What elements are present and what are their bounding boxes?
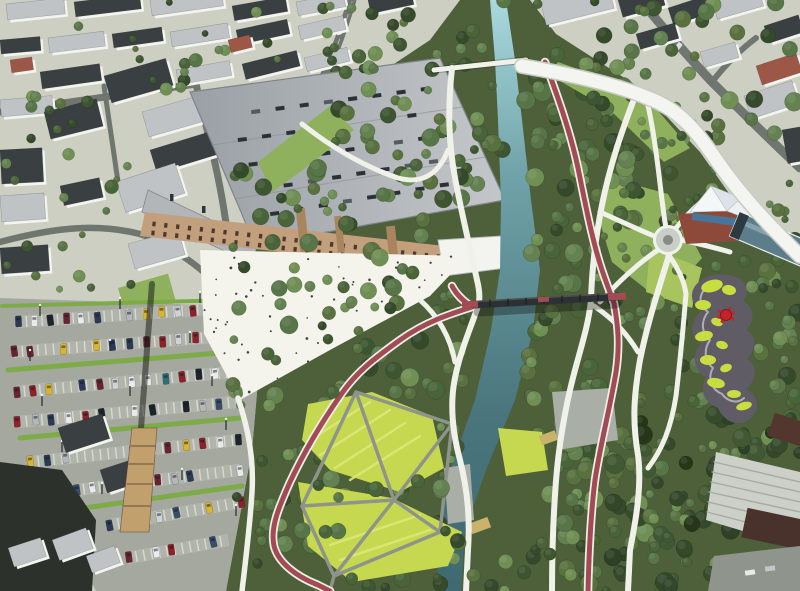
person-dot <box>352 281 354 283</box>
tree-highlight <box>720 448 725 453</box>
tree-highlight <box>468 570 475 577</box>
tree-highlight <box>332 102 340 110</box>
person-dot <box>397 261 399 263</box>
tree-highlight <box>362 83 370 91</box>
tree-highlight <box>367 8 373 14</box>
tree-highlight <box>11 176 16 181</box>
car <box>199 438 206 450</box>
tree-highlight <box>545 549 551 555</box>
tree-highlight <box>434 574 438 578</box>
tree-highlight <box>254 209 262 217</box>
tree-highlight <box>452 534 459 541</box>
tree-highlight <box>373 250 382 259</box>
tree-highlight <box>732 449 737 454</box>
tree-highlight <box>332 524 340 532</box>
window <box>200 227 204 232</box>
window <box>223 230 227 235</box>
tree-highlight <box>353 51 360 58</box>
person-dot <box>270 330 272 332</box>
tree-highlight <box>266 236 274 244</box>
tree-highlight <box>747 92 756 101</box>
tree-highlight <box>592 379 601 388</box>
tree-highlight <box>760 284 765 289</box>
window <box>187 235 191 240</box>
car-windshield <box>32 317 36 320</box>
tree-highlight <box>747 281 753 287</box>
tree-highlight <box>252 8 257 13</box>
tree-highlight <box>731 26 739 34</box>
tree-highlight <box>216 47 220 51</box>
car <box>15 316 22 327</box>
window <box>282 237 286 242</box>
tree-highlight <box>415 229 422 236</box>
tree-highlight <box>713 120 720 127</box>
car <box>154 474 161 485</box>
person-dot <box>226 321 228 323</box>
tree-highlight <box>770 381 775 386</box>
tree-highlight <box>319 322 323 326</box>
tree-highlight <box>324 335 329 340</box>
car-windshield <box>49 416 53 419</box>
tree-highlight <box>789 389 797 397</box>
person-dot <box>450 255 452 257</box>
person-dot <box>233 257 235 259</box>
tree-highlight <box>723 93 732 102</box>
tree-highlight <box>691 52 696 57</box>
tree-highlight <box>527 169 536 178</box>
tree-highlight <box>655 528 663 536</box>
tree-highlight <box>388 20 394 26</box>
tree-highlight <box>415 190 420 195</box>
tree-highlight <box>637 307 642 312</box>
tree-highlight <box>677 541 685 549</box>
car-windshield <box>127 312 131 315</box>
tree-highlight <box>618 244 623 249</box>
tree-highlight <box>534 0 539 5</box>
car-windshield <box>33 416 37 419</box>
tree-highlight <box>402 8 410 16</box>
tree-highlight <box>150 77 154 81</box>
person-dot <box>215 279 217 281</box>
bridge-approach-east <box>608 293 626 301</box>
tree-highlight <box>602 116 608 122</box>
car-windshield <box>16 318 20 321</box>
person-dot <box>317 342 319 344</box>
light-pole-lamp <box>41 394 43 396</box>
tree-highlight <box>257 528 262 533</box>
car-windshield <box>157 513 161 516</box>
person-dot <box>381 300 383 302</box>
tree-highlight <box>664 579 672 587</box>
roof-chimney <box>170 194 174 201</box>
tree-highlight <box>625 437 632 444</box>
tree-highlight <box>670 206 674 210</box>
tree-highlight <box>527 358 532 363</box>
tree-highlight <box>32 92 37 97</box>
tree-highlight <box>500 556 507 563</box>
tree-highlight <box>362 284 370 292</box>
tree-highlight <box>610 526 616 532</box>
tree-highlight <box>127 281 131 285</box>
window <box>152 222 156 227</box>
tree-highlight <box>231 336 235 340</box>
tree-highlight <box>370 483 378 491</box>
window <box>188 226 192 231</box>
car-windshield <box>176 335 180 338</box>
window <box>247 232 251 237</box>
tree-highlight <box>64 149 70 155</box>
tree-highlight <box>627 504 635 512</box>
light-pole-lamp <box>129 384 131 386</box>
tree-highlight <box>678 132 683 137</box>
tree-highlight <box>684 68 691 75</box>
light-pole-lamp <box>211 374 213 376</box>
car-windshield <box>213 370 217 373</box>
car <box>126 338 133 349</box>
tree-highlight <box>637 399 641 403</box>
car <box>93 339 100 351</box>
tree-highlight <box>324 208 328 212</box>
tree-highlight <box>608 518 614 524</box>
tree-highlight <box>276 299 282 305</box>
tree-highlight <box>23 241 29 247</box>
car <box>158 306 165 317</box>
tree-highlight <box>441 293 446 298</box>
tree-highlight <box>675 413 679 417</box>
east-bank-lawn <box>498 428 548 476</box>
tree-highlight <box>700 487 709 496</box>
person-dot <box>237 359 239 361</box>
tree-highlight <box>428 382 437 391</box>
tree-highlight <box>549 107 557 115</box>
tree-highlight <box>444 363 450 369</box>
person-dot <box>254 281 256 283</box>
tree-highlight <box>417 214 424 221</box>
light-pole-lamp <box>101 482 103 484</box>
car-windshield <box>155 476 159 479</box>
car <box>65 412 72 424</box>
tree-highlight <box>532 135 539 142</box>
tree-highlight <box>607 495 616 504</box>
tree-highlight <box>32 272 37 277</box>
tree-highlight <box>620 152 629 161</box>
car <box>192 332 199 343</box>
tree-highlight <box>762 29 769 36</box>
tree-highlight <box>425 87 429 91</box>
tree-highlight <box>407 267 414 274</box>
tree-highlight <box>335 493 340 498</box>
tree-highlight <box>552 225 558 231</box>
tree-highlight <box>550 381 557 388</box>
car <box>31 315 37 326</box>
tree-highlight <box>180 59 186 65</box>
tree-highlight <box>106 181 113 188</box>
tree-highlight <box>277 194 282 199</box>
tree-highlight <box>436 192 445 201</box>
tree-highlight <box>347 573 353 579</box>
tree-highlight <box>787 281 793 287</box>
light-pole-lamp <box>119 297 121 299</box>
tree-highlight <box>227 378 234 385</box>
car-windshield <box>184 441 188 444</box>
tree-highlight <box>625 313 630 318</box>
tree-highlight <box>587 119 593 125</box>
tree-highlight <box>683 558 688 563</box>
tree-highlight <box>583 360 591 368</box>
car-windshield <box>83 413 87 416</box>
tree-highlight <box>774 332 781 339</box>
car <box>44 455 51 467</box>
car-windshield <box>191 307 195 310</box>
tree-highlight <box>768 127 775 134</box>
tree-highlight <box>780 368 789 377</box>
tree-highlight <box>124 163 128 167</box>
car-windshield <box>159 308 163 311</box>
car <box>13 387 20 399</box>
tree-highlight <box>478 43 483 48</box>
light-pole-lamp <box>181 468 183 470</box>
tree-highlight <box>266 499 272 505</box>
car <box>162 373 169 384</box>
path-hub-plaza <box>655 227 682 254</box>
car <box>189 305 196 317</box>
tree-highlight <box>328 56 333 61</box>
tree-highlight <box>625 20 632 27</box>
tree-highlight <box>103 208 107 212</box>
tree-highlight <box>640 318 647 325</box>
tree-highlight <box>177 83 182 88</box>
tree-highlight <box>27 102 33 108</box>
tree-highlight <box>595 52 602 59</box>
tree-highlight <box>27 135 32 140</box>
car-windshield <box>15 389 19 392</box>
window <box>401 250 405 255</box>
tree-highlight <box>620 189 625 194</box>
tree-highlight <box>457 44 462 49</box>
tree-highlight <box>689 396 695 402</box>
tree-highlight <box>286 191 294 199</box>
tree-highlight <box>519 567 526 574</box>
tree-highlight <box>268 388 277 397</box>
person-dot <box>217 319 219 321</box>
tree-highlight <box>382 584 387 589</box>
tree-highlight <box>260 519 267 526</box>
tree-highlight <box>296 523 304 531</box>
tree-highlight <box>339 282 345 288</box>
tree-highlight <box>567 470 575 478</box>
tree-highlight <box>626 45 634 53</box>
window <box>211 228 215 233</box>
car <box>174 306 182 318</box>
tree-highlight <box>671 492 679 500</box>
tree-highlight <box>787 94 796 103</box>
tree-highlight <box>341 304 346 309</box>
tree-highlight <box>525 246 534 255</box>
person-dot <box>306 337 309 340</box>
hub-center <box>663 235 673 245</box>
tree-highlight <box>406 388 412 394</box>
car-windshield <box>200 402 204 405</box>
aerial-masterplan-rendering <box>0 0 800 591</box>
tree-highlight <box>264 400 270 406</box>
car-windshield <box>80 381 84 384</box>
tree-highlight <box>398 264 404 270</box>
tree-highlight <box>314 481 320 487</box>
tree-highlight <box>233 302 240 309</box>
tree-highlight <box>438 423 442 427</box>
tree-highlight <box>133 46 136 49</box>
car-windshield <box>64 315 68 318</box>
tree-highlight <box>641 445 647 451</box>
tree-highlight <box>319 4 325 10</box>
tree-highlight <box>422 150 427 155</box>
car-windshield <box>47 386 51 389</box>
tree-highlight <box>580 58 588 66</box>
car-windshield <box>180 373 184 376</box>
window <box>164 223 168 228</box>
bridge-approach-west <box>462 301 478 309</box>
car <box>63 313 70 324</box>
car-windshield <box>61 345 65 348</box>
tree-highlight <box>559 181 568 190</box>
car-windshield <box>45 457 49 460</box>
tree-highlight <box>655 32 662 39</box>
tree-highlight <box>653 478 659 484</box>
tree-highlight <box>642 246 648 252</box>
light-pole-lamp <box>225 418 227 420</box>
car <box>212 368 219 380</box>
tree-highlight <box>641 69 647 75</box>
window <box>318 241 322 246</box>
tree-highlight <box>399 98 406 105</box>
tree-highlight <box>233 493 238 498</box>
tree-highlight <box>362 125 370 133</box>
car <box>10 345 18 357</box>
tree-highlight <box>782 216 786 220</box>
car <box>131 405 138 416</box>
car-windshield <box>48 316 52 319</box>
tree-highlight <box>371 303 375 307</box>
person-dot <box>215 327 217 329</box>
tree-highlight <box>546 244 554 252</box>
tree-highlight <box>518 92 527 101</box>
tree-highlight <box>554 284 559 289</box>
tree-highlight <box>340 67 347 74</box>
car <box>183 401 190 412</box>
car-windshield <box>184 403 188 406</box>
tree-highlight <box>669 140 673 144</box>
tree-highlight <box>781 356 785 360</box>
tree-highlight <box>423 130 432 139</box>
person-dot <box>429 262 431 264</box>
light-pole-lamp <box>39 304 41 306</box>
tree-highlight <box>752 438 758 444</box>
tree-highlight <box>538 538 544 544</box>
tree-highlight <box>321 198 326 203</box>
car <box>199 400 207 412</box>
car-windshield <box>12 347 16 350</box>
car <box>159 336 166 347</box>
person-dot <box>269 315 271 317</box>
tree-highlight <box>767 201 771 205</box>
tree-highlight <box>686 197 690 201</box>
window <box>330 242 334 247</box>
car-windshield <box>197 370 201 373</box>
building-roof <box>10 57 34 73</box>
car <box>46 384 53 395</box>
person-dot <box>307 258 309 260</box>
tree-highlight <box>230 243 235 248</box>
tree-highlight <box>787 180 791 184</box>
window <box>163 232 167 237</box>
person-dot <box>245 295 248 298</box>
person-dot <box>333 298 335 300</box>
tree-highlight <box>532 235 538 241</box>
person-dot <box>424 279 426 281</box>
tree-highlight <box>528 392 536 400</box>
tree-highlight <box>441 527 446 532</box>
tree-highlight <box>734 430 743 439</box>
light-pole-lamp <box>109 339 111 341</box>
tree-highlight <box>649 553 655 559</box>
tree-highlight <box>655 461 663 469</box>
tree-highlight <box>306 282 311 287</box>
tree-highlight <box>273 282 281 290</box>
tree-highlight <box>773 280 778 285</box>
tree-highlight <box>672 335 678 341</box>
tree-highlight <box>370 64 375 69</box>
roof-chimney <box>202 206 206 213</box>
tree-highlight <box>709 442 713 446</box>
person-dot <box>230 267 233 270</box>
car-windshield <box>218 439 222 442</box>
window <box>235 231 239 236</box>
tree-highlight <box>664 533 670 539</box>
light-pole-lamp <box>235 504 237 506</box>
tree-highlight <box>624 58 630 64</box>
tree-highlight <box>615 209 622 216</box>
car-windshield <box>95 314 99 317</box>
tree-highlight <box>467 25 474 32</box>
tree-highlight <box>331 44 336 49</box>
person-dot <box>213 331 215 333</box>
tree-highlight <box>69 119 74 124</box>
tree-highlight <box>482 141 486 145</box>
tree-highlight <box>639 118 643 122</box>
tree-highlight <box>667 45 673 51</box>
tree-highlight <box>626 458 633 465</box>
tree-highlight <box>2 159 7 164</box>
tree-highlight <box>257 180 265 188</box>
car <box>195 368 202 379</box>
tree-highlight <box>254 559 259 564</box>
car <box>47 414 54 426</box>
car <box>78 379 86 391</box>
person-dot <box>311 295 313 297</box>
tree-highlight <box>311 161 320 170</box>
tree-highlight <box>435 114 441 120</box>
tree-highlight <box>489 82 493 86</box>
tree-highlight <box>686 517 694 525</box>
tree-highlight <box>284 450 290 456</box>
tree-highlight <box>579 462 588 471</box>
tree-highlight <box>740 256 746 262</box>
car <box>175 333 182 344</box>
car <box>183 439 190 451</box>
tree-highlight <box>588 92 595 99</box>
tree-highlight <box>581 382 586 387</box>
car <box>215 398 222 410</box>
